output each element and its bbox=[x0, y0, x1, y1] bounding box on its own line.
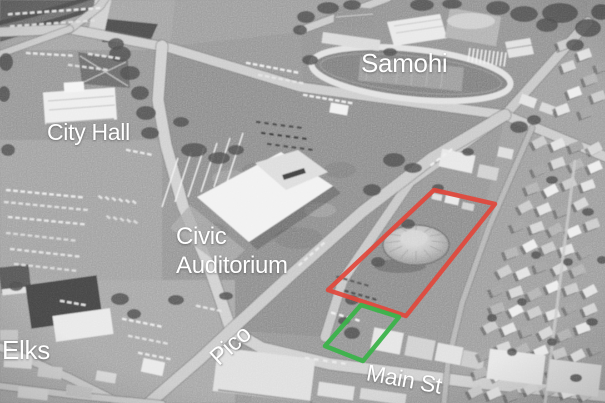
label-civic-auditorium: Civic Auditorium bbox=[176, 222, 288, 280]
label-civic-line2: Auditorium bbox=[176, 251, 288, 280]
film-grain bbox=[0, 0, 605, 403]
label-city-hall: City Hall bbox=[47, 121, 130, 144]
label-samohi: Samohi bbox=[361, 50, 447, 76]
aerial-photo-canvas bbox=[0, 0, 605, 403]
annotated-aerial-photo: Samohi City Hall Civic Auditorium Elks P… bbox=[0, 0, 605, 403]
label-elks: Elks bbox=[2, 337, 50, 363]
label-civic-line1: Civic bbox=[176, 222, 288, 251]
